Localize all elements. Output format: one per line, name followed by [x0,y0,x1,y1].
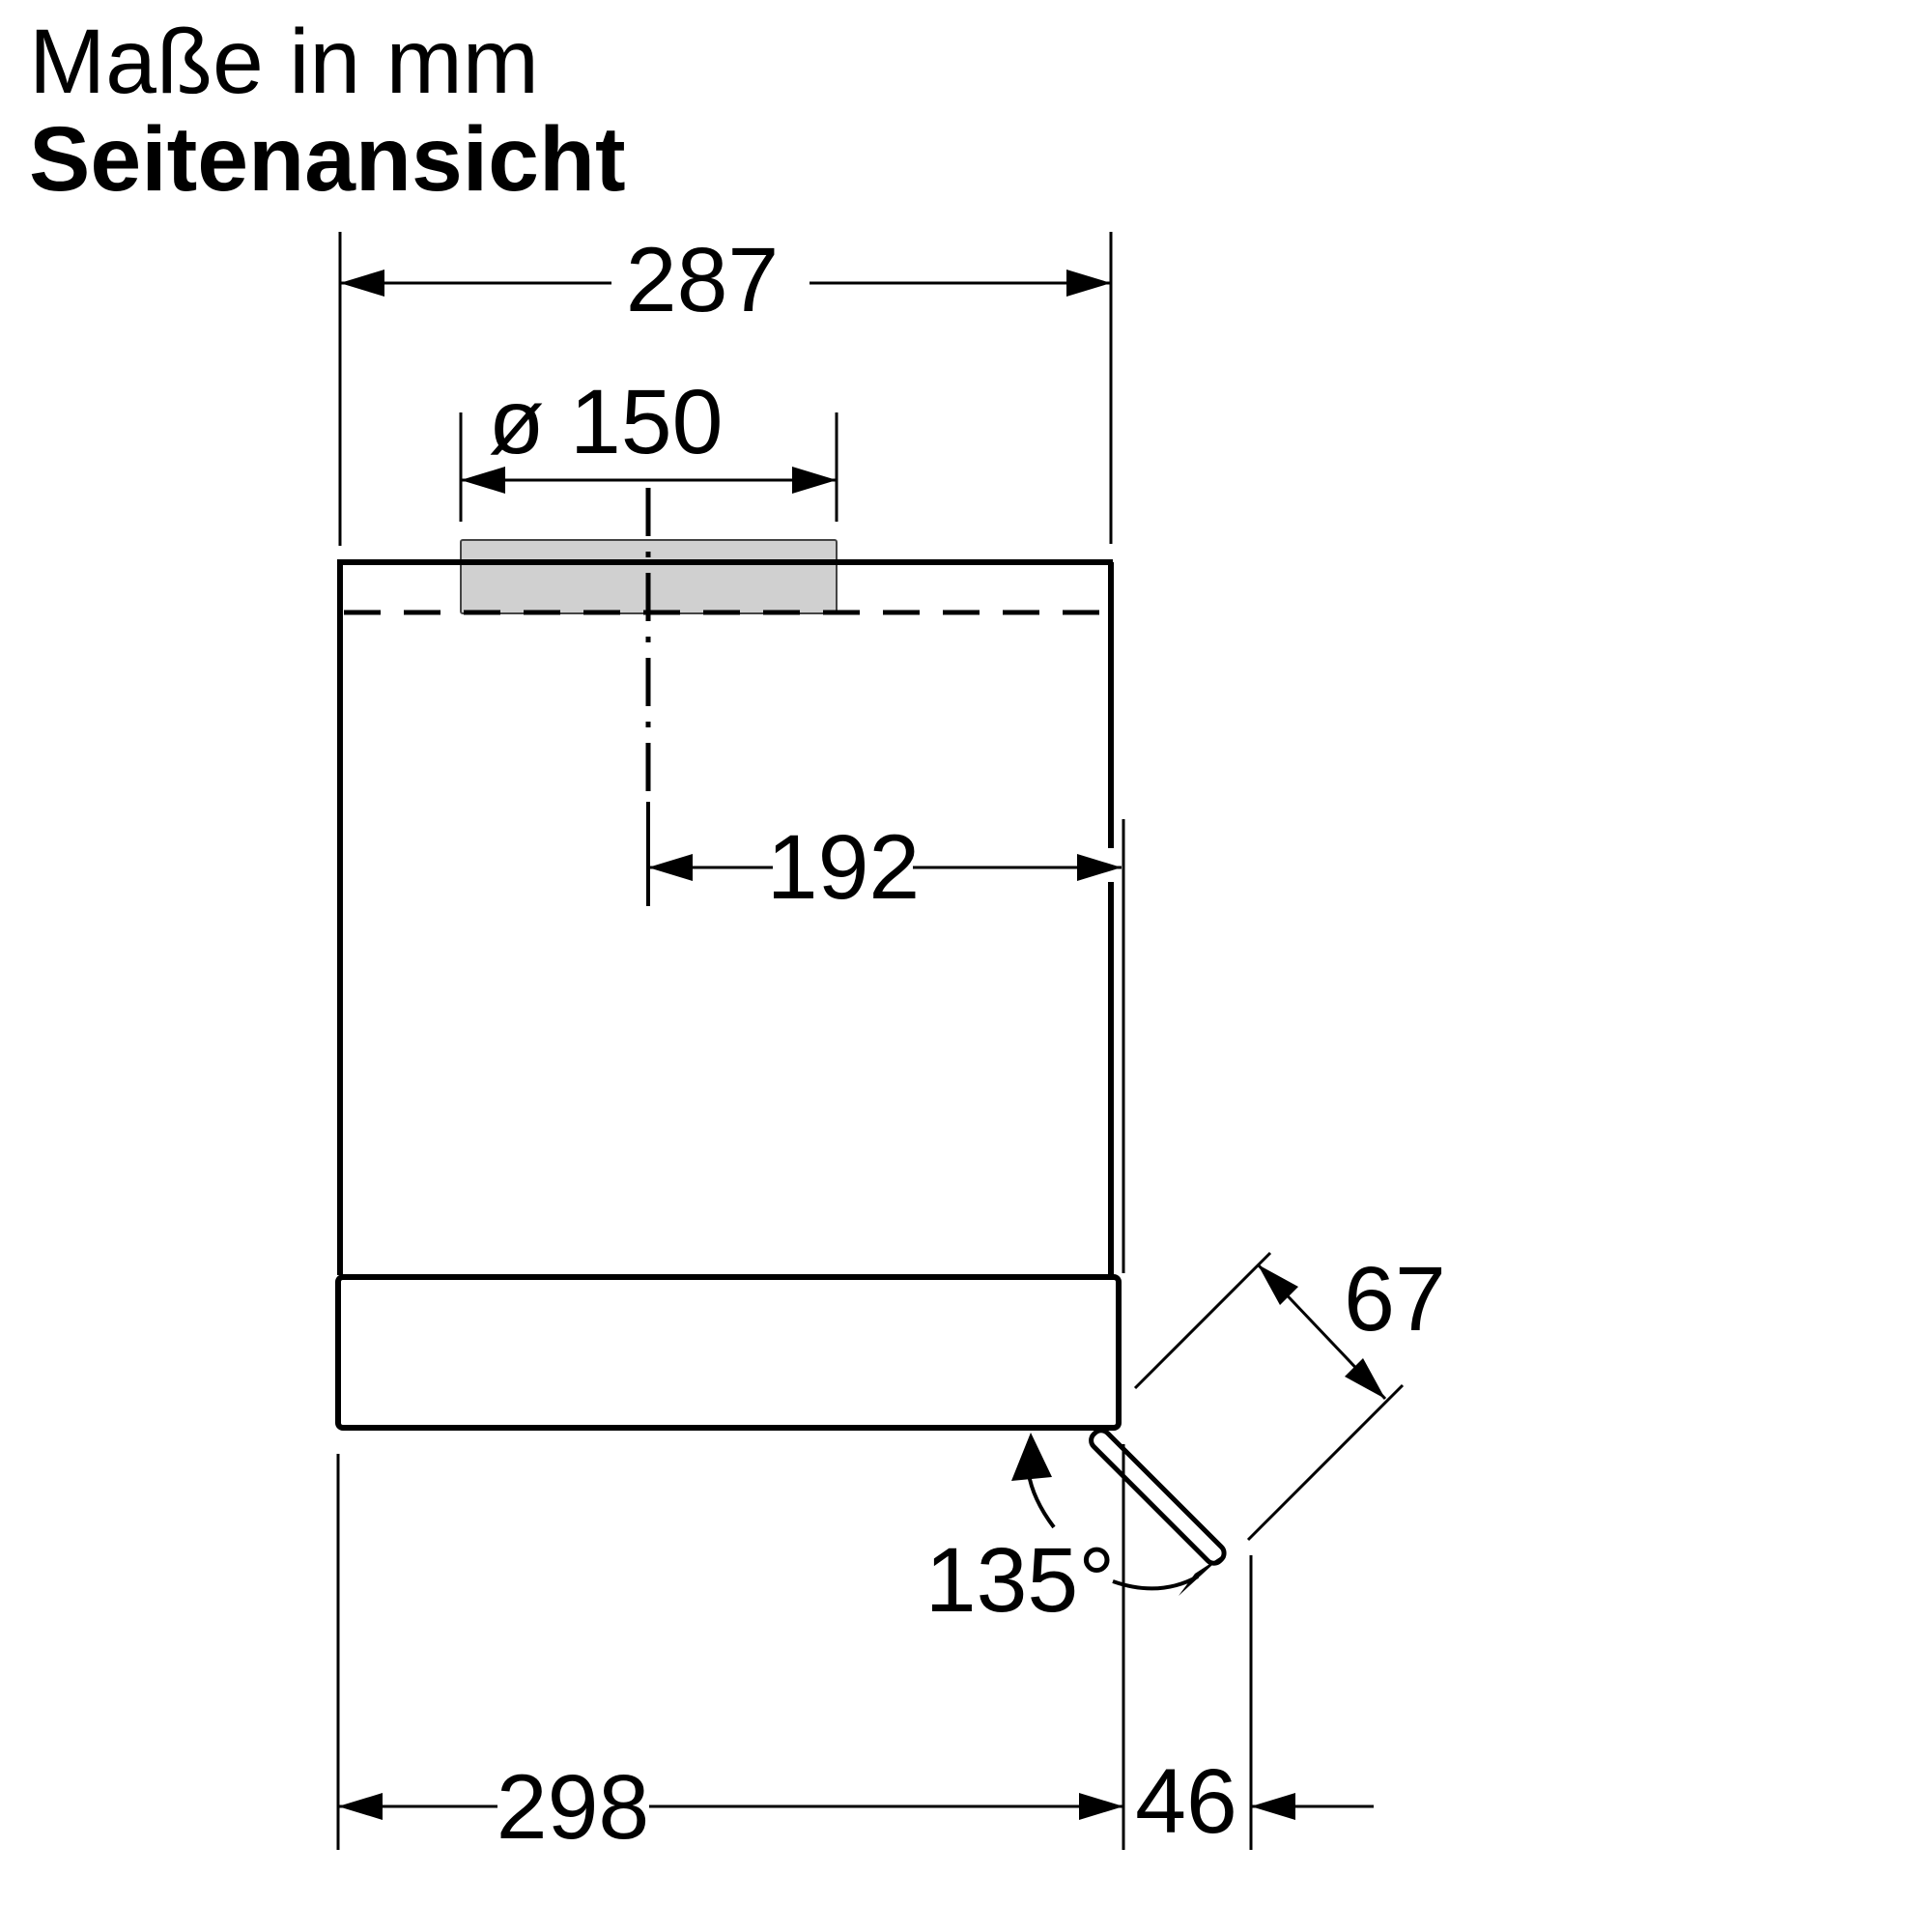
dim-287-arrow-left [340,270,384,297]
dim-287-arrow-right [1066,270,1111,297]
dim-67-ext-lower [1248,1385,1403,1540]
angle-arc-right [1113,1577,1198,1588]
dimension-diagram-page: Maße in mm Seitenansicht [0,0,1932,1932]
visor-band [338,1277,1119,1428]
dim-center-to-right: 192 [648,816,1123,1273]
dim-192-label: 192 [767,816,921,919]
dim-150-label: ø 150 [489,371,724,473]
dim-298-label: 298 [497,1756,650,1859]
side-view-drawing: 287 ø 150 192 67 [0,0,1932,1932]
dim-298-arrow-left [338,1793,383,1820]
dim-bottom-width: 298 [338,1444,1123,1859]
angle-arrow-up [1011,1433,1052,1481]
dim-46-label: 46 [1135,1750,1237,1853]
dim-67-label: 67 [1344,1248,1446,1350]
hood-body [340,559,1113,1280]
dim-192-arrow-right [1077,854,1122,881]
dim-top-width: 287 [340,229,1111,546]
dim-192-arrow-left [648,854,693,881]
dim-298-arrow-right [1079,1793,1123,1820]
dim-flap-offset: 46 [1135,1555,1374,1853]
visor-band-rect [338,1277,1119,1428]
dim-150-arrow-right [792,467,837,494]
dim-46-arrow [1251,1793,1295,1820]
dim-287-label: 287 [626,229,780,331]
dim-135-label: 135° [925,1529,1116,1632]
dim-flap-length: 67 [1135,1248,1446,1540]
dim-67-ext-upper [1135,1253,1270,1388]
